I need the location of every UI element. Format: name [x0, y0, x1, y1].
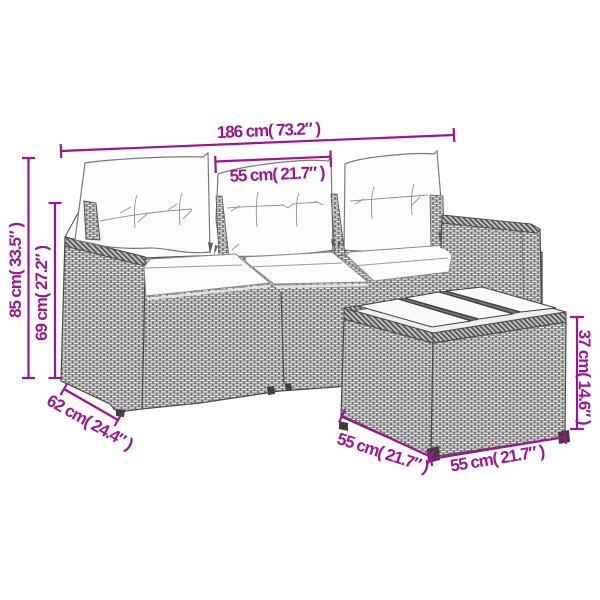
- svg-text:85 cm( 33.5″ ): 85 cm( 33.5″ ): [6, 223, 25, 318]
- svg-text:37 cm( 14.6″ ): 37 cm( 14.6″ ): [575, 330, 594, 425]
- svg-text:69 cm( 27.2″ ): 69 cm( 27.2″ ): [32, 246, 51, 341]
- svg-text:55 cm( 21.7″ ): 55 cm( 21.7″ ): [229, 163, 325, 186]
